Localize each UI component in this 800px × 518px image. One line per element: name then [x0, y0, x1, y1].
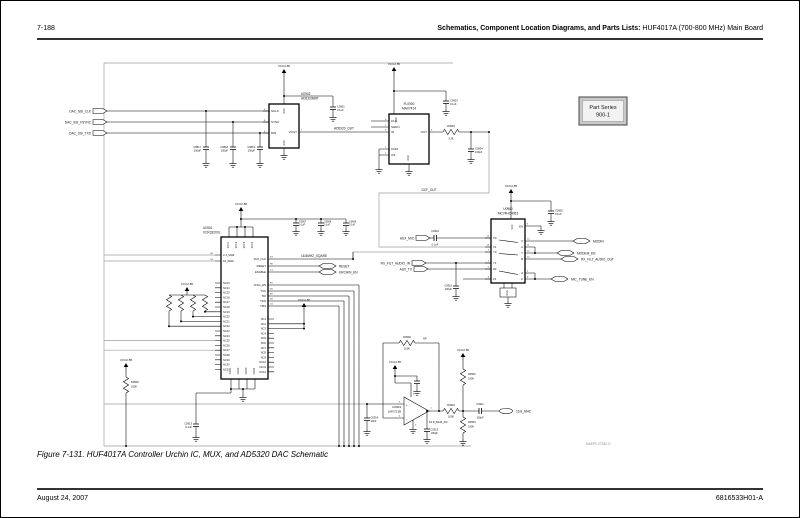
svg-text:NC22: NC22	[223, 324, 230, 328]
part-series-box: Part Series 900-1	[579, 97, 627, 125]
reset-port: RESET	[319, 264, 350, 269]
svg-text:R0904: R0904	[447, 403, 455, 407]
svg-text:NC10: NC10	[259, 360, 266, 364]
svg-text:C0913: C0913	[184, 421, 192, 425]
svg-text:C0818: C0818	[220, 145, 228, 149]
svg-text:R0903: R0903	[468, 420, 476, 424]
svg-text:SYNC: SYNC	[271, 120, 280, 124]
svg-text:0.1uF: 0.1uF	[337, 108, 344, 112]
svg-text:D6: D6	[270, 298, 274, 300]
svg-text:1: 1	[385, 147, 387, 149]
svg-text:B: B	[521, 257, 523, 261]
svg-text:NC14: NC14	[223, 286, 230, 290]
svg-text:TDO: TDO	[260, 299, 267, 303]
refdes: U0903	[392, 405, 401, 409]
net-label-16-8mhz-sqare: 16.8MHZ_SQARE	[301, 254, 327, 258]
svg-text:C0911: C0911	[476, 402, 484, 406]
fl0900-filter-ic: FL0900 MAX7414 CLK SHDN IN COM OS 8 7 3 …	[385, 102, 433, 164]
svg-text:C0817: C0817	[193, 145, 201, 149]
svg-text:H6: H6	[270, 263, 274, 265]
svg-text:900-1: 900-1	[596, 113, 610, 119]
svg-text:100K: 100K	[468, 425, 474, 429]
svg-text:10: 10	[527, 257, 530, 259]
refdes: U0960	[503, 207, 513, 211]
svg-text:GND3: GND3	[245, 367, 248, 374]
aux-tx-port: AUX_TX	[400, 267, 428, 272]
svg-text:GND: GND	[506, 290, 509, 296]
net-label-np: NP	[423, 337, 427, 341]
document-page: 7-188 Schematics, Component Location Dia…	[0, 0, 800, 518]
vcc-label: VCC2.85	[389, 360, 402, 364]
capacitor-c0912: C0912 100pF	[424, 427, 439, 435]
svg-text:NC19: NC19	[223, 310, 230, 314]
svg-text:0.1uF: 0.1uF	[185, 425, 192, 429]
vcc-label: VCC2.85	[388, 62, 401, 66]
svg-text:0.1uF: 0.1uF	[299, 224, 306, 227]
svg-text:SCLK: SCLK	[271, 109, 279, 113]
svg-text:ENABLE: ENABLE	[255, 270, 266, 274]
svg-text:1: 1	[431, 408, 433, 410]
svg-text:G1: G1	[210, 259, 214, 261]
part-number: MAX7414	[402, 107, 416, 111]
svg-text:C0901: C0901	[337, 104, 345, 108]
svg-text:0.1uF: 0.1uF	[349, 224, 356, 227]
svg-text:–: –	[406, 417, 408, 421]
svg-text:NC20: NC20	[223, 315, 230, 319]
svg-text:X1: X1	[493, 245, 497, 249]
svg-text:5: 5	[431, 130, 433, 132]
svg-text:VDD: VDD	[283, 108, 286, 113]
capacitor-c0900	[414, 381, 420, 384]
svg-text:RESET: RESET	[339, 265, 350, 269]
svg-text:NC8: NC8	[261, 351, 267, 355]
svg-text:Z0: Z0	[493, 267, 497, 271]
svg-text:TDI: TDI	[261, 294, 266, 298]
vcc-label: VCC2.85	[505, 184, 518, 188]
svg-text:Part Series: Part Series	[589, 105, 616, 111]
svg-text:4: 4	[399, 415, 401, 417]
drawing-number-watermark: MAEPF-27332-O	[586, 442, 611, 446]
svg-text:RX_FILT_AUDIO_OUT: RX_FILT_AUDIO_OUT	[581, 258, 614, 262]
u0901-controller-ic: U0901 XCR3320XL VCC1 VCC2 VCC3 VCC4 GND1…	[203, 226, 274, 379]
svg-text:100pF: 100pF	[248, 149, 256, 153]
rx-filt-audio-in-port: RX_FILT_AUDIO_IN	[381, 261, 426, 266]
modem-en-port: MODEM_EN	[557, 251, 596, 256]
svg-text:Y0: Y0	[493, 250, 497, 254]
svg-text:11: 11	[527, 245, 530, 247]
capacitor-c0910: C0910 0.1uF	[431, 229, 439, 246]
schematic-canvas: VCC2.85 VCC2.85 VCC2.85 VCC2.85 VCC2.85 …	[1, 1, 800, 518]
capacitor-c0913: C0913 0.1uF	[184, 421, 199, 429]
nc-left-pins: NC13 NC14 NC15 NC16 NC17 NC18 NC19 NC20 …	[223, 281, 230, 371]
svg-text:0.1uF: 0.1uF	[432, 242, 439, 246]
svg-text:GND2: GND2	[237, 367, 240, 374]
svg-text:C0914: C0914	[371, 415, 379, 419]
resistor-r0903: R0903 100K	[460, 417, 476, 433]
svg-text:100pF: 100pF	[431, 431, 439, 435]
svg-text:NC17: NC17	[223, 300, 230, 304]
svg-text:NC26: NC26	[223, 343, 230, 347]
refdes: FL0900	[404, 102, 415, 106]
vcc-label: VCC2.85	[298, 298, 311, 302]
capacitor-c0904: C0904 100pF	[468, 146, 483, 154]
svg-text:15: 15	[527, 251, 530, 253]
svg-text:R0905: R0905	[131, 380, 139, 384]
svg-text:VDD: VDD	[395, 117, 398, 122]
capacitor-c0903: C0903 0.1uF	[443, 98, 458, 106]
u0960-mux-ic: U0960 MC74HC4053 VCC GND X0 X1 Y0 Y1 Z0 …	[485, 207, 530, 297]
svg-text:E5: E5	[270, 282, 273, 284]
svg-text:4: 4	[527, 271, 529, 273]
svg-text:5: 5	[488, 267, 490, 269]
svg-text:C0912: C0912	[431, 427, 439, 431]
svg-text:IN: IN	[391, 130, 394, 134]
rx-filt-audio-out-port: RX_FILT_AUDIO_OUT	[561, 257, 614, 262]
svg-text:NC5: NC5	[261, 336, 267, 340]
svg-text:NC13: NC13	[223, 281, 230, 285]
svg-text:COM: COM	[391, 147, 399, 151]
svg-text:NC31: NC31	[223, 367, 230, 371]
svg-text:NC11: NC11	[260, 365, 267, 369]
svg-text:VCC2: VCC2	[235, 241, 238, 248]
capacitor-c0818: C0818 100pF	[220, 145, 236, 153]
svg-text:AUX_TX: AUX_TX	[400, 268, 413, 272]
capacitor-c0817: C0817 100pF	[193, 145, 209, 153]
vcc-label: VCC2.85	[235, 202, 248, 206]
svg-text:5: 5	[264, 109, 266, 111]
svg-text:7: 7	[385, 125, 387, 127]
svg-text:0.1uF: 0.1uF	[324, 224, 331, 227]
resistor-r0902: R0902 100K	[460, 369, 476, 385]
svg-text:C0905: C0905	[555, 208, 563, 212]
svg-text:Z: Z	[521, 271, 523, 275]
svg-text:OUT: OUT	[421, 130, 428, 134]
svg-text:NC4: NC4	[261, 331, 267, 335]
svg-text:SHDN: SHDN	[391, 125, 400, 129]
svg-text:NC2: NC2	[261, 322, 267, 326]
svg-text:C0819: C0819	[247, 145, 255, 149]
capacitor-c0911: C0911 100pF	[476, 402, 484, 419]
svg-text:VCC3: VCC3	[243, 241, 246, 248]
svg-text:14: 14	[527, 239, 530, 241]
svg-text:C1: C1	[270, 269, 274, 271]
svg-text:13: 13	[487, 245, 490, 247]
svg-text:R0902: R0902	[468, 372, 476, 376]
svg-text:NC18: NC18	[223, 305, 230, 309]
svg-text:3: 3	[488, 277, 490, 279]
svg-text:X0: X0	[493, 236, 497, 240]
svg-text:3: 3	[399, 401, 401, 403]
svg-text:VCC4: VCC4	[251, 241, 254, 248]
svg-text:2: 2	[385, 153, 387, 155]
svg-text:1: 1	[488, 261, 490, 263]
svg-text:OS: OS	[391, 153, 395, 157]
svg-text:R0900: R0900	[403, 335, 411, 339]
svg-text:100pF: 100pF	[445, 287, 453, 291]
svg-text:MODIN: MODIN	[593, 240, 604, 244]
svg-text:Y: Y	[521, 251, 523, 255]
svg-text:16.8_MHZ: 16.8_MHZ	[516, 410, 531, 414]
svg-text:6: 6	[264, 120, 266, 122]
svg-text:4: 4	[264, 131, 266, 133]
svg-text:C0903: C0903	[450, 98, 458, 102]
svg-text:NC15: NC15	[223, 291, 230, 295]
capacitor-c0907: C0907 0.1uF	[293, 220, 307, 226]
svg-text:RX_FILT_AUDIO_IN: RX_FILT_AUDIO_IN	[381, 262, 411, 266]
capacitor-c0819: C0819 100pF	[247, 145, 263, 153]
svg-text:K3: K3	[270, 256, 273, 258]
svg-text:100pF: 100pF	[194, 149, 202, 153]
svg-text:VCC1: VCC1	[227, 241, 230, 248]
svg-text:X: X	[521, 239, 523, 243]
pullup-resistors	[166, 295, 207, 311]
port-label-dac-ssi-clk: DAC_SSI_CLK	[69, 110, 91, 114]
port-label-dac-ssi-txd: DAC_SSI_TXD	[69, 132, 91, 136]
svg-text:GND: GND	[283, 140, 286, 146]
urchin-en-port: URCHIN_EN	[319, 270, 358, 275]
vcc-label: VCC2.85	[457, 348, 470, 352]
svg-text:EN: EN	[519, 225, 523, 229]
svg-text:33pF: 33pF	[371, 419, 377, 423]
freq-16-8-port: 16.8_MHZ	[500, 408, 531, 413]
svg-text:NC23: NC23	[223, 329, 230, 333]
net-label-16-8mhz-dc: 16.8_MHZ_DC	[429, 420, 448, 424]
svg-text:1: 1	[301, 130, 303, 132]
svg-text:NC3: NC3	[261, 327, 267, 331]
capacitor-c0909: C0909 0.1uF	[343, 220, 357, 226]
aux-mic-port: AUX_MIC	[400, 236, 430, 241]
svg-text:TMS: TMS	[260, 304, 266, 308]
svg-text:VOUT: VOUT	[289, 130, 298, 134]
svg-text:0.1uF: 0.1uF	[450, 102, 457, 106]
svg-text:9: 9	[527, 277, 529, 279]
svg-text:NC27: NC27	[223, 348, 230, 352]
svg-text:R0901: R0901	[447, 124, 455, 128]
svg-text:NC30: NC30	[223, 363, 230, 367]
svg-text:MODEM_EN: MODEM_EN	[577, 252, 596, 256]
svg-text:12: 12	[487, 236, 490, 238]
svg-text:0.1uF: 0.1uF	[555, 212, 562, 216]
svg-text:Z1: Z1	[493, 277, 497, 281]
part-number: XCR3320XL	[203, 231, 221, 235]
svg-text:100pF: 100pF	[221, 149, 229, 153]
svg-text:NC1: NC1	[261, 317, 267, 321]
svg-text:NC12: NC12	[259, 370, 266, 374]
modin-port: MODIN	[573, 239, 604, 244]
vcc-label: VCC2.85	[278, 64, 291, 68]
svg-text:NC25: NC25	[223, 339, 230, 343]
capacitor-c0905: C0905 0.1uF	[548, 208, 563, 216]
svg-text:C0904: C0904	[475, 146, 483, 150]
svg-text:NC6: NC6	[261, 341, 267, 345]
svg-text:D5: D5	[270, 288, 274, 290]
svg-text:DIN: DIN	[271, 131, 276, 135]
svg-text:2: 2	[488, 250, 490, 252]
svg-text:+: +	[406, 403, 408, 407]
svg-text:C0915: C0915	[444, 283, 452, 287]
svg-text:100K: 100K	[404, 347, 410, 351]
svg-text:100K: 100K	[131, 385, 137, 389]
svg-text:RESET: RESET	[257, 264, 267, 268]
svg-text:NC16: NC16	[223, 295, 230, 299]
u0903-opamp: U0903 LMV721B + – 3 4 1 5 2	[388, 393, 433, 426]
svg-text:C6: C6	[270, 303, 274, 305]
svg-text:GND4: GND4	[253, 367, 256, 374]
svg-text:100pF: 100pF	[475, 150, 483, 154]
svg-text:TCK: TCK	[260, 289, 266, 293]
resistor-r0901: R0901 3.3K	[443, 124, 459, 140]
capacitor-c0915: C0915 100pF	[444, 283, 459, 291]
capacitor-c0901: C0901 0.1uF	[330, 104, 345, 112]
svg-text:100K: 100K	[468, 377, 474, 381]
refdes: U0901	[203, 226, 213, 230]
svg-text:VCC: VCC	[511, 224, 514, 229]
svg-text:NC29: NC29	[223, 358, 230, 362]
svg-text:NC24: NC24	[223, 334, 230, 338]
svg-text:NC21: NC21	[223, 319, 230, 323]
svg-text:Y1: Y1	[493, 261, 497, 265]
part-number: MC74HC4053	[498, 212, 518, 216]
svg-text:G7: G7	[210, 253, 214, 255]
svg-text:NC9: NC9	[261, 355, 267, 359]
svg-text:AUX_MIC: AUX_MIC	[400, 237, 415, 241]
refdes: U0902	[301, 92, 311, 96]
svg-text:C: C	[521, 277, 523, 281]
svg-text:2: 2	[415, 424, 417, 426]
svg-text:16.8_CLK: 16.8_CLK	[254, 257, 267, 261]
resistor-r0904: R0904 100K	[443, 403, 459, 419]
svg-text:100K: 100K	[448, 415, 454, 419]
port-label-dac-ssi-fsync: DAC_SSI_FSYNC	[65, 121, 92, 125]
svg-text:16_MHZ: 16_MHZ	[223, 259, 234, 263]
svg-text:100pF: 100pF	[476, 415, 484, 419]
svg-text:6: 6	[527, 224, 529, 226]
capacitor-c0914: C0914 33pF	[364, 415, 379, 423]
svg-text:NC28: NC28	[223, 353, 230, 357]
svg-text:MIC_TUNE_EN: MIC_TUNE_EN	[571, 278, 594, 282]
svg-text:3: 3	[385, 130, 387, 132]
net-label-ad5320-out: AD5320_OUT	[334, 127, 354, 131]
vcc-label: VCC2.85	[120, 358, 133, 362]
svg-text:C0910: C0910	[431, 229, 439, 233]
svg-text:2.4_MHZ: 2.4_MHZ	[223, 253, 235, 257]
net-label-gcf-out: GCF_OUT	[421, 188, 436, 192]
u0902-dac-ic: U0902 AD5320BRT SCLK SYNC DIN 5 6 4 VOUT…	[263, 92, 319, 148]
svg-text:A: A	[521, 245, 523, 249]
svg-text:NC7: NC7	[261, 346, 267, 350]
capacitor-c0908: C0908 0.1uF	[318, 220, 332, 226]
part-number: LMV721B	[388, 410, 401, 414]
svg-text:GND: GND	[407, 155, 410, 161]
svg-text:B7: B7	[270, 293, 273, 295]
part-number: AD5320BRT	[301, 97, 319, 101]
svg-text:3.3K: 3.3K	[448, 136, 454, 140]
dac-ssi-ports: DAC_SSI_CLK DAC_SSI_FSYNC DAC_SSI_TXD	[65, 109, 107, 136]
vcc-label: VCC2.85	[181, 282, 194, 286]
svg-text:8: 8	[385, 119, 387, 121]
resistor-r0905: R0905 100K	[123, 377, 139, 393]
svg-text:URCHIN_EN: URCHIN_EN	[339, 271, 358, 275]
svg-text:JTAG_EN: JTAG_EN	[254, 283, 266, 287]
mic-tune-en-port: MIC_TUNE_EN	[551, 277, 594, 282]
